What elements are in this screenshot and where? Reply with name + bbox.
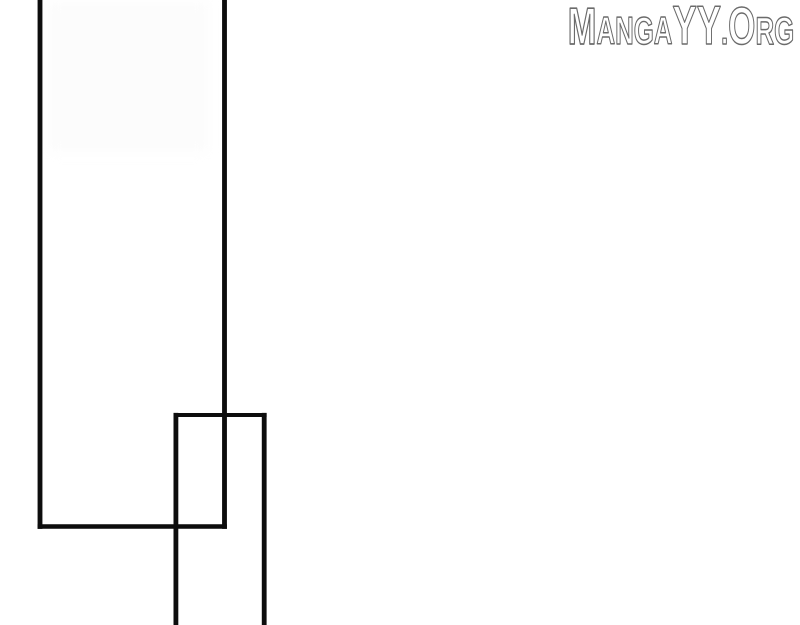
svg-text:MANGAYY.ORG: MANGAYY.ORG [568,0,794,56]
